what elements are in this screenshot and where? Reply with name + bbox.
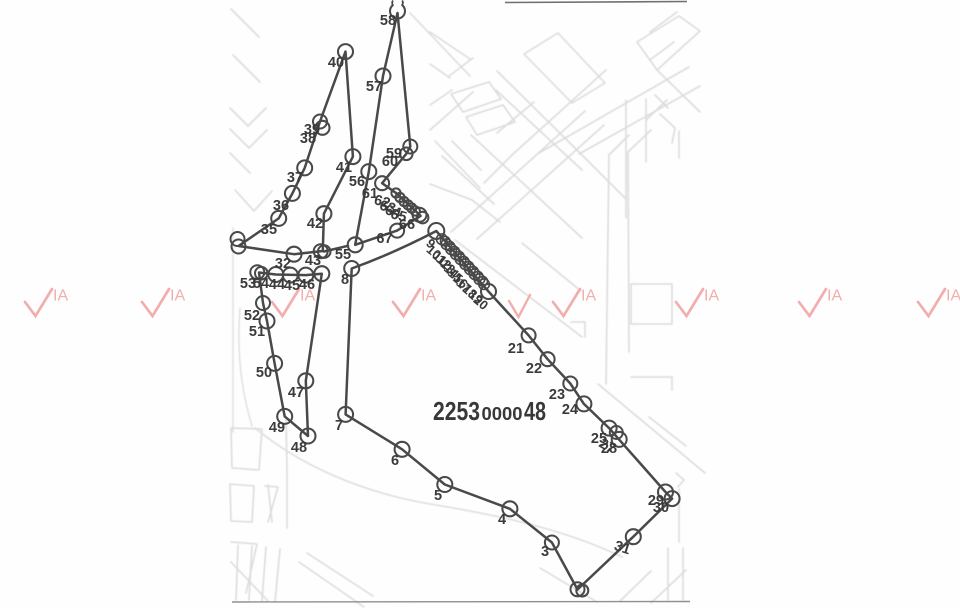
svg-text:40: 40 bbox=[328, 55, 344, 71]
svg-text:IA: IA bbox=[581, 288, 596, 305]
svg-text:36: 36 bbox=[273, 198, 289, 214]
svg-text:48: 48 bbox=[524, 396, 546, 426]
svg-text:IA: IA bbox=[704, 288, 719, 305]
svg-text:3: 3 bbox=[541, 544, 549, 560]
svg-text:8: 8 bbox=[341, 272, 349, 288]
svg-text:51: 51 bbox=[249, 324, 265, 340]
svg-text:45: 45 bbox=[284, 278, 300, 294]
svg-text:37: 37 bbox=[287, 170, 303, 186]
svg-text:0000: 0000 bbox=[482, 403, 523, 424]
svg-text:50: 50 bbox=[256, 365, 272, 381]
svg-text:35: 35 bbox=[261, 222, 277, 238]
svg-text:IA: IA bbox=[53, 288, 68, 305]
svg-text:IA: IA bbox=[827, 288, 842, 305]
svg-text:23: 23 bbox=[549, 387, 565, 403]
svg-text:IA: IA bbox=[946, 288, 960, 305]
svg-text:4: 4 bbox=[498, 512, 506, 528]
svg-text:54: 54 bbox=[253, 276, 269, 292]
svg-text:5: 5 bbox=[434, 488, 442, 504]
svg-text:6: 6 bbox=[391, 453, 399, 469]
svg-text:44: 44 bbox=[269, 277, 285, 293]
svg-text:IA: IA bbox=[421, 288, 436, 305]
svg-text:24: 24 bbox=[562, 402, 578, 418]
svg-text:55: 55 bbox=[335, 247, 351, 263]
svg-text:39: 39 bbox=[304, 122, 320, 138]
svg-text:67: 67 bbox=[376, 231, 392, 247]
svg-text:57: 57 bbox=[366, 79, 382, 95]
svg-text:43: 43 bbox=[305, 253, 321, 269]
svg-text:58: 58 bbox=[380, 13, 396, 29]
svg-text:48: 48 bbox=[291, 440, 307, 456]
svg-text:49: 49 bbox=[269, 420, 285, 436]
svg-text:21: 21 bbox=[508, 341, 524, 357]
svg-text:66: 66 bbox=[399, 217, 415, 233]
svg-text:IA: IA bbox=[170, 288, 185, 305]
svg-text:22: 22 bbox=[526, 361, 542, 377]
svg-text:46: 46 bbox=[299, 277, 315, 293]
svg-text:52: 52 bbox=[244, 308, 260, 324]
svg-text:28: 28 bbox=[601, 441, 617, 457]
svg-text:2253: 2253 bbox=[433, 396, 480, 426]
svg-text:30: 30 bbox=[653, 500, 669, 516]
svg-text:7: 7 bbox=[335, 418, 343, 434]
svg-text:47: 47 bbox=[288, 385, 304, 401]
svg-text:42: 42 bbox=[307, 216, 323, 232]
svg-text:60: 60 bbox=[382, 154, 398, 170]
svg-text:32: 32 bbox=[275, 256, 291, 272]
